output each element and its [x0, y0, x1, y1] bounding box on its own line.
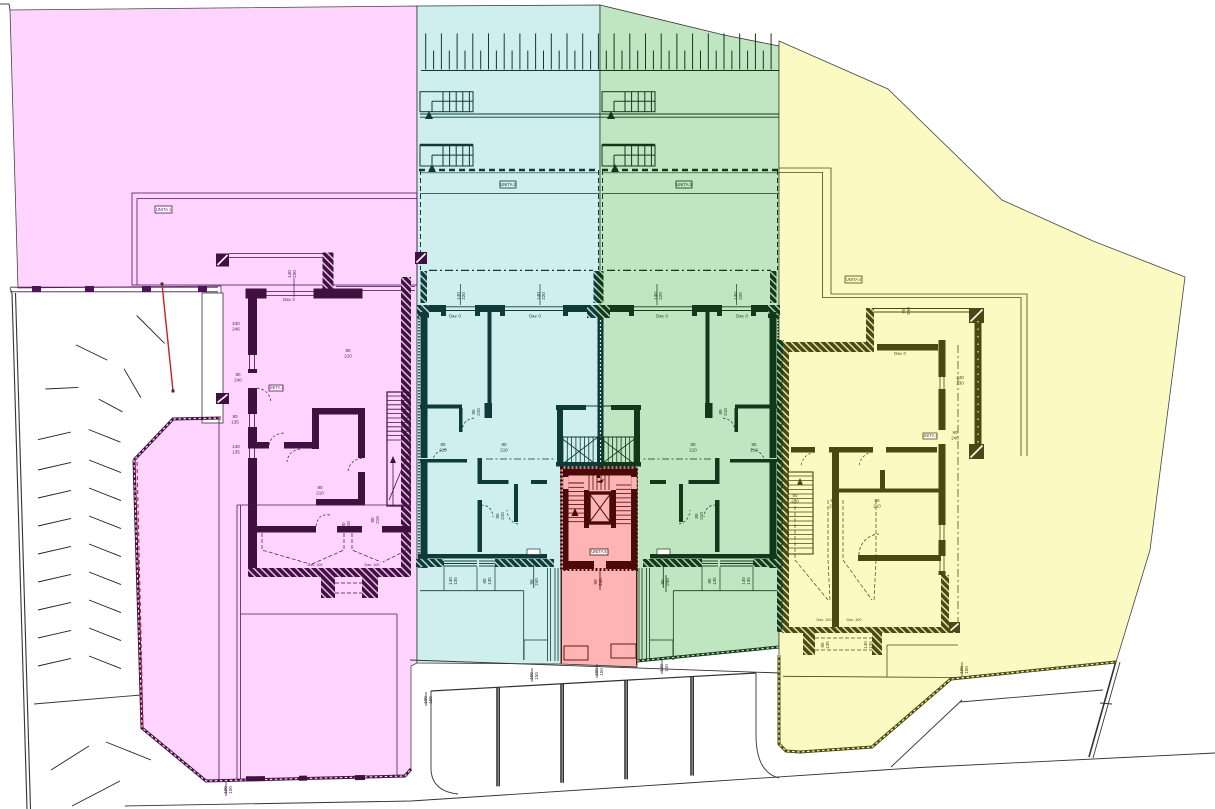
svg-text:135: 135: [712, 577, 717, 585]
svg-text:150: 150: [664, 664, 669, 672]
svg-text:210: 210: [500, 512, 505, 520]
svg-text:210: 210: [500, 448, 508, 453]
svg-text:Dav. 100: Dav. 100: [450, 554, 465, 558]
svg-text:210: 210: [375, 516, 380, 524]
svg-text:150: 150: [428, 696, 433, 704]
svg-text:210: 210: [344, 354, 352, 359]
svg-text:210: 210: [750, 448, 758, 453]
svg-text:80: 80: [440, 442, 446, 447]
svg-text:135: 135: [868, 641, 873, 649]
svg-text:Dav. 100: Dav. 100: [847, 618, 862, 622]
svg-text:270: 270: [791, 499, 799, 504]
svg-text:80: 80: [501, 442, 507, 447]
svg-text:Dav. 0: Dav. 0: [656, 314, 668, 319]
svg-text:Dav. 100: Dav. 100: [365, 563, 380, 567]
svg-text:135: 135: [746, 577, 751, 585]
svg-text:210: 210: [316, 491, 324, 496]
svg-text:240: 240: [956, 375, 964, 380]
svg-text:80: 80: [690, 442, 696, 447]
svg-text:210: 210: [699, 512, 704, 520]
svg-text:220: 220: [738, 292, 743, 300]
svg-text:UNITA 4: UNITA 4: [922, 433, 938, 438]
svg-text:80: 80: [792, 493, 798, 498]
svg-text:90: 90: [235, 372, 241, 377]
svg-text:220: 220: [541, 292, 546, 300]
svg-text:Dav. 0: Dav. 0: [449, 314, 461, 319]
svg-text:135: 135: [487, 577, 492, 585]
svg-text:80: 80: [232, 414, 238, 419]
svg-text:210: 210: [689, 448, 697, 453]
svg-text:150: 150: [228, 786, 233, 794]
svg-text:210: 210: [439, 448, 447, 453]
svg-text:UNITA 4: UNITA 4: [846, 277, 862, 282]
svg-text:150: 150: [599, 668, 604, 676]
svg-text:UNITA 5: UNITA 5: [591, 549, 607, 554]
svg-text:240: 240: [598, 578, 603, 586]
svg-text:220: 220: [292, 270, 297, 278]
svg-text:80: 80: [751, 442, 757, 447]
svg-text:240: 240: [906, 307, 911, 315]
svg-text:240: 240: [951, 436, 959, 441]
svg-text:80: 80: [830, 498, 836, 503]
svg-text:Dav. 100: Dav. 100: [733, 554, 748, 558]
svg-text:80: 80: [317, 485, 323, 490]
svg-text:240: 240: [234, 378, 242, 383]
svg-text:UNITA 1: UNITA 1: [156, 207, 172, 212]
svg-text:240: 240: [665, 578, 670, 586]
svg-text:220: 220: [461, 292, 466, 300]
svg-text:80: 80: [874, 498, 880, 503]
svg-text:246: 246: [232, 327, 240, 332]
svg-text:210: 210: [476, 408, 481, 416]
svg-text:UNITA 3: UNITA 3: [676, 182, 692, 187]
svg-text:150: 150: [964, 666, 969, 674]
svg-text:UNITA 1: UNITA 1: [268, 385, 284, 390]
svg-text:210: 210: [346, 521, 351, 529]
svg-text:210: 210: [829, 504, 837, 509]
svg-text:Dav. 100: Dav. 100: [701, 554, 716, 558]
svg-text:135: 135: [232, 450, 240, 455]
svg-text:240: 240: [232, 321, 240, 326]
svg-text:Dav. 100: Dav. 100: [482, 554, 497, 558]
svg-text:Dav. 100: Dav. 100: [817, 618, 832, 622]
svg-text:Dav. 100: Dav. 100: [308, 563, 323, 567]
svg-text:210: 210: [873, 504, 881, 509]
svg-text:140: 140: [232, 444, 240, 449]
svg-text:135: 135: [453, 577, 458, 585]
svg-text:Dav. 0: Dav. 0: [736, 314, 748, 319]
svg-text:135: 135: [231, 420, 239, 425]
svg-text:220: 220: [658, 292, 663, 300]
svg-text:80: 80: [345, 348, 351, 353]
svg-text:90: 90: [952, 430, 958, 435]
svg-text:230: 230: [956, 381, 964, 386]
svg-text:135: 135: [825, 641, 830, 649]
svg-text:150: 150: [534, 672, 539, 680]
svg-text:210: 210: [723, 408, 728, 416]
svg-text:UNITA 2: UNITA 2: [500, 182, 516, 187]
svg-text:Dav. 0: Dav. 0: [529, 314, 541, 319]
svg-text:Dav. 0: Dav. 0: [894, 351, 906, 356]
svg-text:240: 240: [534, 578, 539, 586]
svg-text:Dav. 0: Dav. 0: [283, 297, 295, 302]
